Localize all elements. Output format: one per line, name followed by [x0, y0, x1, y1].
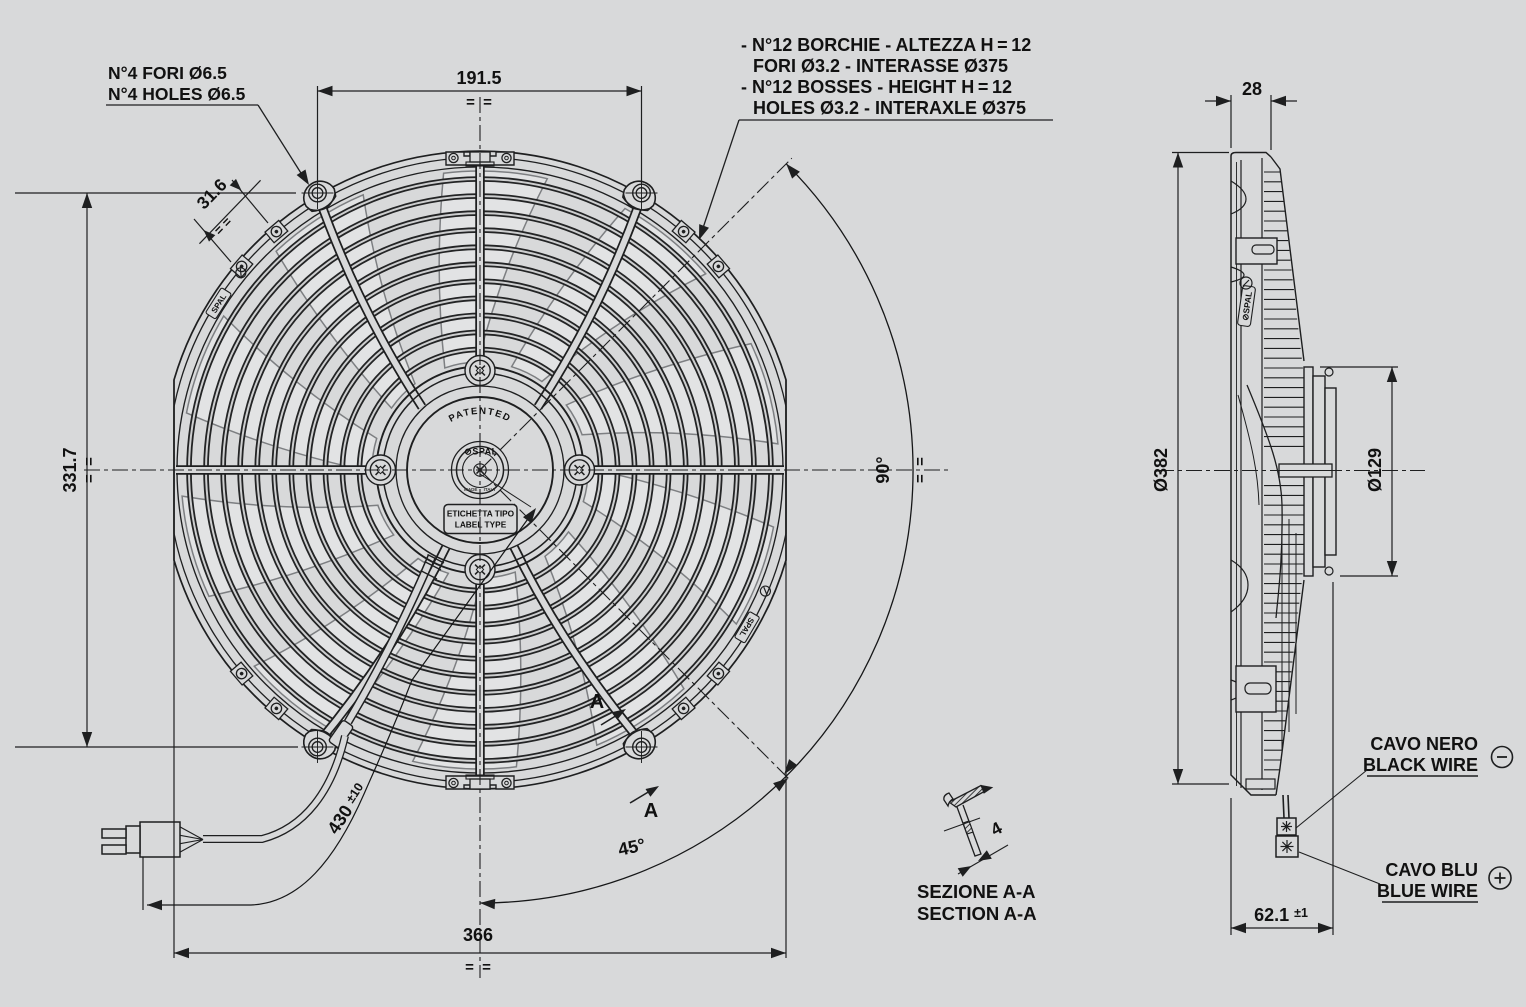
svg-text:Ø129: Ø129	[1365, 448, 1385, 492]
svg-text:LABEL TYPE: LABEL TYPE	[455, 520, 507, 530]
svg-text:= =: = =	[81, 457, 98, 483]
svg-text:28: 28	[1242, 79, 1262, 99]
svg-text:Ø382: Ø382	[1151, 448, 1171, 492]
svg-text:A: A	[590, 691, 604, 713]
svg-text:N°4 FORI Ø6.5: N°4 FORI Ø6.5	[108, 63, 227, 83]
svg-text:366: 366	[463, 925, 493, 945]
svg-text:= =: = =	[912, 457, 929, 483]
svg-text:N°4 HOLES Ø6.5: N°4 HOLES Ø6.5	[108, 84, 246, 104]
svg-text:331.7: 331.7	[60, 447, 80, 492]
svg-text:CAVO BLU: CAVO BLU	[1385, 860, 1478, 880]
svg-text:= =: = =	[466, 94, 492, 111]
svg-text:BLUE WIRE: BLUE WIRE	[1377, 881, 1478, 901]
svg-text:- N°12 BOSSES - HEIGHT H = 12: - N°12 BOSSES - HEIGHT H = 12	[741, 77, 1012, 97]
svg-text:HOLES Ø3.2 - INTERAXLE Ø375: HOLES Ø3.2 - INTERAXLE Ø375	[753, 98, 1026, 118]
svg-text:BLACK WIRE: BLACK WIRE	[1363, 755, 1478, 775]
svg-text:= =: = =	[465, 959, 491, 976]
svg-text:A: A	[644, 800, 658, 822]
svg-text:⊘SPAL: ⊘SPAL	[464, 447, 497, 457]
svg-text:90°: 90°	[873, 456, 893, 483]
svg-text:FORI Ø3.2 - INTERASSE Ø375: FORI Ø3.2 - INTERASSE Ø375	[753, 56, 1008, 76]
svg-text:SECTION A-A: SECTION A-A	[917, 903, 1037, 924]
svg-text:SEZIONE A-A: SEZIONE A-A	[917, 881, 1036, 902]
svg-text:ETICHETTA TIPO: ETICHETTA TIPO	[447, 509, 515, 519]
svg-text:CAVO NERO: CAVO NERO	[1370, 734, 1478, 754]
svg-text:- N°12 BORCHIE - ALTEZZA H = 1: - N°12 BORCHIE - ALTEZZA H = 12	[741, 35, 1031, 55]
svg-text:191.5: 191.5	[456, 68, 501, 88]
